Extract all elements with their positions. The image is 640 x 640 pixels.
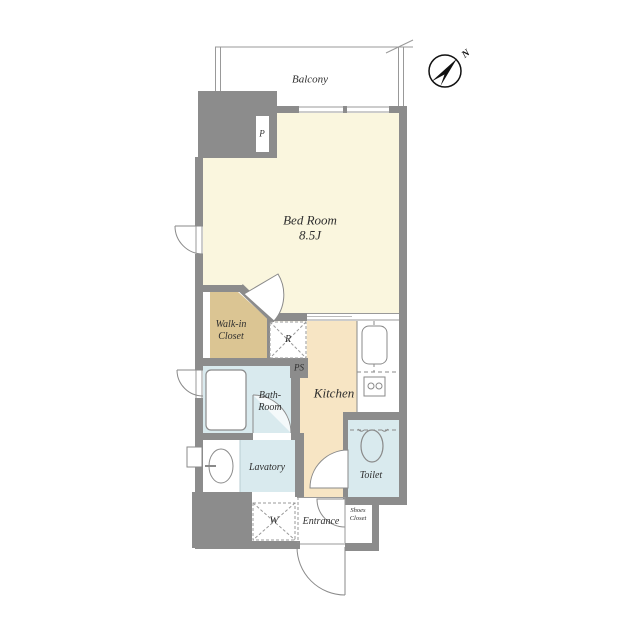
bedroom-side-window: [175, 226, 203, 254]
pipe-label: P: [259, 129, 265, 140]
balcony-label: Balcony: [292, 74, 328, 87]
shoes-closet-bottom-wall: [345, 543, 379, 551]
toilet-label: Toilet: [360, 470, 382, 482]
washer-label: W: [269, 515, 278, 528]
floorplan-drawing: [0, 0, 640, 640]
entrance-door: [297, 544, 345, 595]
toilet-top-wall: [343, 412, 399, 420]
bath-lavatory-wall-left: [203, 433, 253, 440]
compass-icon: [429, 55, 461, 87]
balcony-window-right: [347, 106, 389, 113]
kitchen-counter: [357, 321, 399, 412]
sliding-door-band: [307, 313, 399, 321]
pillar-bottom-left: [192, 492, 252, 548]
lavatory-right-wall: [295, 440, 304, 497]
kitchen-label: Kitchen: [314, 385, 354, 400]
bedroom-label: Bed Room8.5J: [283, 213, 337, 244]
lavatory-label: Lavatory: [249, 462, 285, 474]
bedroom-size: 8.5J: [299, 228, 321, 243]
walkin-top-wall: [203, 285, 243, 292]
bathtub: [206, 370, 246, 430]
bath-right-wall: [291, 366, 300, 433]
entrance-label: Entrance: [303, 516, 340, 528]
shoes-closet-label: ShoesCloset: [350, 507, 367, 523]
bath-side-window: [177, 370, 203, 398]
pipe-space-label: PS: [294, 363, 304, 374]
toilet-left-wall-lower: [343, 488, 348, 497]
left-wall: [195, 157, 203, 541]
bath-lavatory-wall-right: [291, 433, 304, 440]
balcony-window-left: [299, 106, 343, 113]
bottom-wall-left: [195, 541, 300, 549]
walkin-closet-label: Walk-inCloset: [216, 319, 247, 343]
kitchen-sink: [362, 326, 387, 364]
toilet-left-wall-upper: [343, 420, 348, 450]
refrigerator-label: R: [285, 334, 291, 346]
meter-box: [187, 447, 202, 467]
right-wall: [399, 106, 407, 505]
bath-room-label: Bath-Room: [258, 390, 281, 414]
toilet-bottom-wall: [343, 497, 407, 505]
floorplan-canvas: Balcony Bed Room8.5J Walk-inCloset R PS …: [0, 0, 640, 640]
